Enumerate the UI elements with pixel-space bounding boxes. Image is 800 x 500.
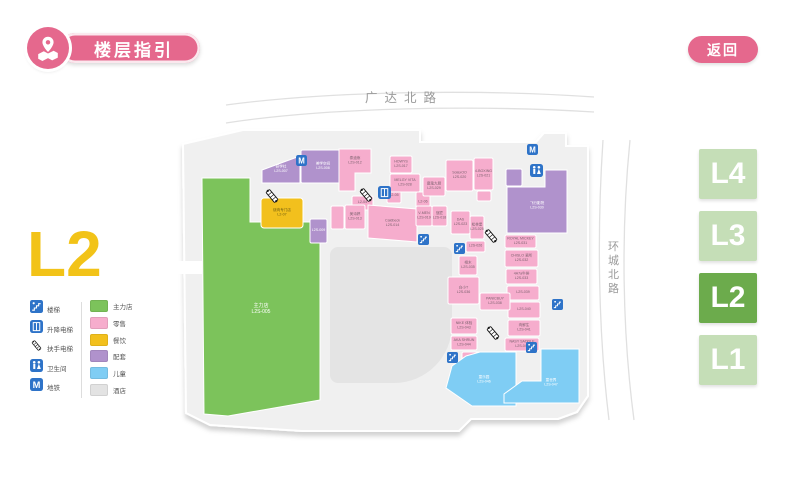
map-block-label: L2S-036 xyxy=(457,290,471,294)
map-block-label: AKA SHRUN xyxy=(454,338,475,342)
svg-text:M: M xyxy=(529,145,536,154)
map-block-label: L2S-021 xyxy=(477,173,491,177)
map-block-label: 研学社 xyxy=(276,163,287,168)
map-block: SolaxOOL2S-020 xyxy=(446,160,473,191)
map-block-label: L2S-029 xyxy=(427,186,441,190)
map-block: L2S-026 xyxy=(466,241,485,252)
legend-color-swatch xyxy=(90,367,108,379)
map-block-label: 飞行影院 xyxy=(530,200,545,205)
map-block-label: L2S-039 xyxy=(516,290,530,294)
map-block: L2S-039 xyxy=(507,286,539,300)
legend-color-swatch xyxy=(90,317,108,329)
plate-notch xyxy=(176,261,202,274)
map-block-label: NIKE 体验 xyxy=(456,320,473,325)
map-block-label: V-MEN xyxy=(418,211,430,215)
legend-category-item: 配套 xyxy=(90,350,133,362)
map-block xyxy=(331,206,344,229)
legend-color-swatch xyxy=(90,334,108,346)
map-block: ROYAL MICKEYL2S-031 xyxy=(505,235,536,248)
map-block: AKA SHRUNL2S-044 xyxy=(451,336,477,350)
map-block-label: 白小T xyxy=(459,284,469,289)
legend-facility-label: 卫生间 xyxy=(47,363,67,373)
metro-icon: M xyxy=(527,144,538,155)
map-block: PANICBUYL2S-038 xyxy=(480,293,510,310)
map-block-label: L2S-035 xyxy=(461,265,475,269)
map-block-label: 主力店 xyxy=(253,302,268,309)
road-guangda-north: 广达北路 xyxy=(226,90,594,123)
road-label-top: 广达北路 xyxy=(365,90,443,105)
floor-button-l1[interactable]: L1 xyxy=(699,335,757,385)
map-block-label: 烧肉专门店 xyxy=(273,207,291,212)
legend-category-item: 零售 xyxy=(90,317,133,329)
map-block-label: 泰迪熊 xyxy=(350,155,361,160)
map-block-label: L2S-009 xyxy=(312,228,326,232)
map-block-label: L2S-025 xyxy=(470,227,484,231)
map-block: 美学空间L2S-008 xyxy=(301,150,345,183)
map-block-label: L2S-046 xyxy=(477,379,491,383)
map-block-label: L2S-047 xyxy=(544,382,558,386)
map-block-label: 魔鬼大厨 xyxy=(427,180,442,185)
map-block: L2S-040 xyxy=(508,302,540,318)
map-pin-icon xyxy=(27,27,69,69)
svg-text:M: M xyxy=(33,380,41,390)
map-block: 白小TL2S-036 xyxy=(448,277,479,304)
legend-color-swatch xyxy=(90,300,108,312)
map-block-label: CHISLO 瓷所 xyxy=(511,252,533,257)
map-block-label: 肉鲜生 xyxy=(519,322,530,327)
map-block: 4-BOXINGL2S-021 xyxy=(474,158,493,190)
stairs-icon xyxy=(447,352,458,363)
map-block-label: PANICBUY xyxy=(486,296,505,300)
atrium xyxy=(330,247,452,383)
map-block: 魔鬼大厨L2S-029 xyxy=(423,177,445,196)
map-block-label: L2S-030 xyxy=(530,205,544,209)
mall-floor-map: 广达北路 环城北路主力店L2S-005研学社L2S-007美学空间L2S-008… xyxy=(0,0,800,500)
map-block-label: L2S-019 xyxy=(417,215,431,219)
map-block-label: L2S-033 xyxy=(515,276,529,280)
map-block: 松林堡L2S-025 xyxy=(470,216,484,239)
floor-button-l3[interactable]: L3 xyxy=(699,211,757,261)
map-block-label: L2S-012 xyxy=(348,160,362,164)
map-block-label: MELGY VITA xyxy=(394,178,416,182)
legend-color-swatch xyxy=(90,350,108,362)
map-block-label: L2-06 xyxy=(418,200,427,204)
legend-facility-label: 升降电梯 xyxy=(47,324,73,334)
map-block-label: L2S-007 xyxy=(274,169,288,173)
map-block-label: 4A7a牛排 xyxy=(514,270,530,275)
floor-button-l2[interactable]: L2 xyxy=(699,273,757,323)
legend-facility-item: 卫生间 xyxy=(30,359,73,377)
legend-divider xyxy=(81,302,82,398)
legend-facility-item: 楼梯 xyxy=(30,300,73,318)
restroom-icon xyxy=(30,359,43,377)
map-block-label: DAS xyxy=(457,217,465,221)
metro-icon: M xyxy=(30,378,43,396)
legend-category-label: 酒店 xyxy=(113,385,126,395)
map-block-label: L2-04 xyxy=(358,200,367,204)
map-block-label: L2S-008 xyxy=(316,166,330,170)
map-block: L2S-009 xyxy=(310,219,327,243)
legend-color-swatch xyxy=(90,384,108,396)
elevator-icon xyxy=(378,186,391,199)
floor-button-l4[interactable]: L4 xyxy=(699,149,757,199)
restroom-icon xyxy=(530,164,543,177)
legend-facilities: 楼梯 升降电梯 扶手电梯 卫生间 M xyxy=(30,300,73,396)
map-block: CaldbeckL2S-014 xyxy=(368,205,417,242)
map-block-label: 童乐园 xyxy=(479,374,490,379)
map-block: CHISLO 瓷所L2S-032 xyxy=(505,250,538,267)
map-block-label: 美诗婷 xyxy=(350,211,361,216)
map-block-label: 4-BOXING xyxy=(475,169,492,173)
map-block: 寇匠L2S-018 xyxy=(432,206,447,226)
map-block-label: L2S-028 xyxy=(398,182,412,186)
map-block-label: L2S-023 xyxy=(454,222,468,226)
map-block xyxy=(477,191,491,201)
legend-category-item: 儿童 xyxy=(90,367,133,379)
map-block-label: SolaxOO xyxy=(452,170,467,174)
map-block-label: L2S-018 xyxy=(433,215,447,219)
map-block: NIKE 体验L2S-043 xyxy=(451,318,477,334)
map-block-label: L2S-005 xyxy=(252,309,271,315)
legend-category-label: 零售 xyxy=(113,318,126,328)
map-block-label: L2S-032 xyxy=(515,258,529,262)
legend-category-item: 主力店 xyxy=(90,300,133,312)
road-huancheng-north: 环城北路 xyxy=(599,140,634,420)
map-block: 美诗婷L2S-013 xyxy=(345,205,365,229)
stairs-icon xyxy=(552,299,563,310)
legend-category-item: 餐饮 xyxy=(90,334,133,346)
back-button[interactable]: 返回 xyxy=(688,36,758,63)
map-block-label: L2S-013 xyxy=(348,216,362,220)
escalator-icon xyxy=(30,339,43,357)
map-block-label: L2S-014 xyxy=(386,223,400,227)
legend-facility-label: 楼梯 xyxy=(47,304,60,314)
page-title: 楼层指引 xyxy=(60,33,200,63)
legend: 楼梯 升降电梯 扶手电梯 卫生间 M xyxy=(30,300,133,398)
legend-facility-item: M 地铁 xyxy=(30,378,73,396)
legend-category-item: 酒店 xyxy=(90,384,133,396)
legend-category-label: 儿童 xyxy=(113,368,126,378)
svg-text:M: M xyxy=(298,156,305,165)
map-block: HOWYSL2S-017 xyxy=(390,156,412,173)
current-floor-label: L2 xyxy=(27,222,102,286)
map-block-label: L2S-026 xyxy=(469,244,483,248)
map-block-label: 松林堡 xyxy=(472,221,483,226)
map-block: 4A7a牛排L2S-033 xyxy=(506,269,537,284)
stairs-icon xyxy=(526,342,537,353)
map-block-label: L2S-043 xyxy=(457,325,471,329)
page-title-text: 楼层指引 xyxy=(94,36,174,61)
map-block-label: HOWYS xyxy=(394,159,408,163)
legend-facility-label: 扶手电梯 xyxy=(47,343,73,353)
metro-icon: M xyxy=(296,155,307,166)
map-block-label: L2S-031 xyxy=(514,241,528,245)
map-block-label: L2S-040 xyxy=(517,307,531,311)
map-block-label: L2S-038 xyxy=(488,301,502,305)
legend-facility-label: 地铁 xyxy=(47,382,60,392)
map-block-label: ROYAL MICKEY xyxy=(507,236,534,240)
map-block: 相木L2S-035 xyxy=(459,256,477,275)
stairs-icon xyxy=(454,243,465,254)
map-block-label: 寇匠 xyxy=(436,210,444,215)
legend-category-label: 餐饮 xyxy=(113,335,126,345)
map-block: 肉鲜生L2S-041 xyxy=(508,320,540,336)
map-block: V-MENL2S-019 xyxy=(416,206,432,226)
map-block-label: 童世界 xyxy=(546,377,557,382)
stairs-icon xyxy=(418,234,429,245)
map-block: MELGY VITAL2S-028 xyxy=(390,174,420,192)
legend-category-label: 主力店 xyxy=(113,301,133,311)
stairs-icon xyxy=(30,300,43,318)
map-block-label: 相木 xyxy=(464,259,472,264)
map-block-label: L2-07 xyxy=(277,212,286,216)
legend-category-label: 配套 xyxy=(113,351,126,361)
map-block: DASL2S-023 xyxy=(451,211,470,234)
legend-categories: 主力店 零售 餐饮 配套 儿童 酒店 xyxy=(90,300,133,396)
floor-guide-screen: 广达北路 环城北路主力店L2S-005研学社L2S-007美学空间L2S-008… xyxy=(0,0,800,500)
map-block-label: L2S-017 xyxy=(394,164,408,168)
map-block: 烧肉专门店L2-07 xyxy=(261,198,303,228)
map-block-label: 美学空间 xyxy=(316,160,331,165)
floor-selector: L4L3L2L1 xyxy=(699,149,757,385)
road-label-right: 环城北路 xyxy=(608,241,619,295)
map-block-label: L2S-020 xyxy=(453,175,467,179)
map-block-label: L2S-044 xyxy=(457,342,471,346)
legend-facility-item: 升降电梯 xyxy=(30,320,73,338)
map-block-label: L2S-041 xyxy=(517,327,531,331)
map-block-label: Caldbeck xyxy=(385,218,400,222)
map-block xyxy=(506,169,522,186)
legend-facility-item: 扶手电梯 xyxy=(30,339,73,357)
elevator-icon xyxy=(30,320,43,338)
